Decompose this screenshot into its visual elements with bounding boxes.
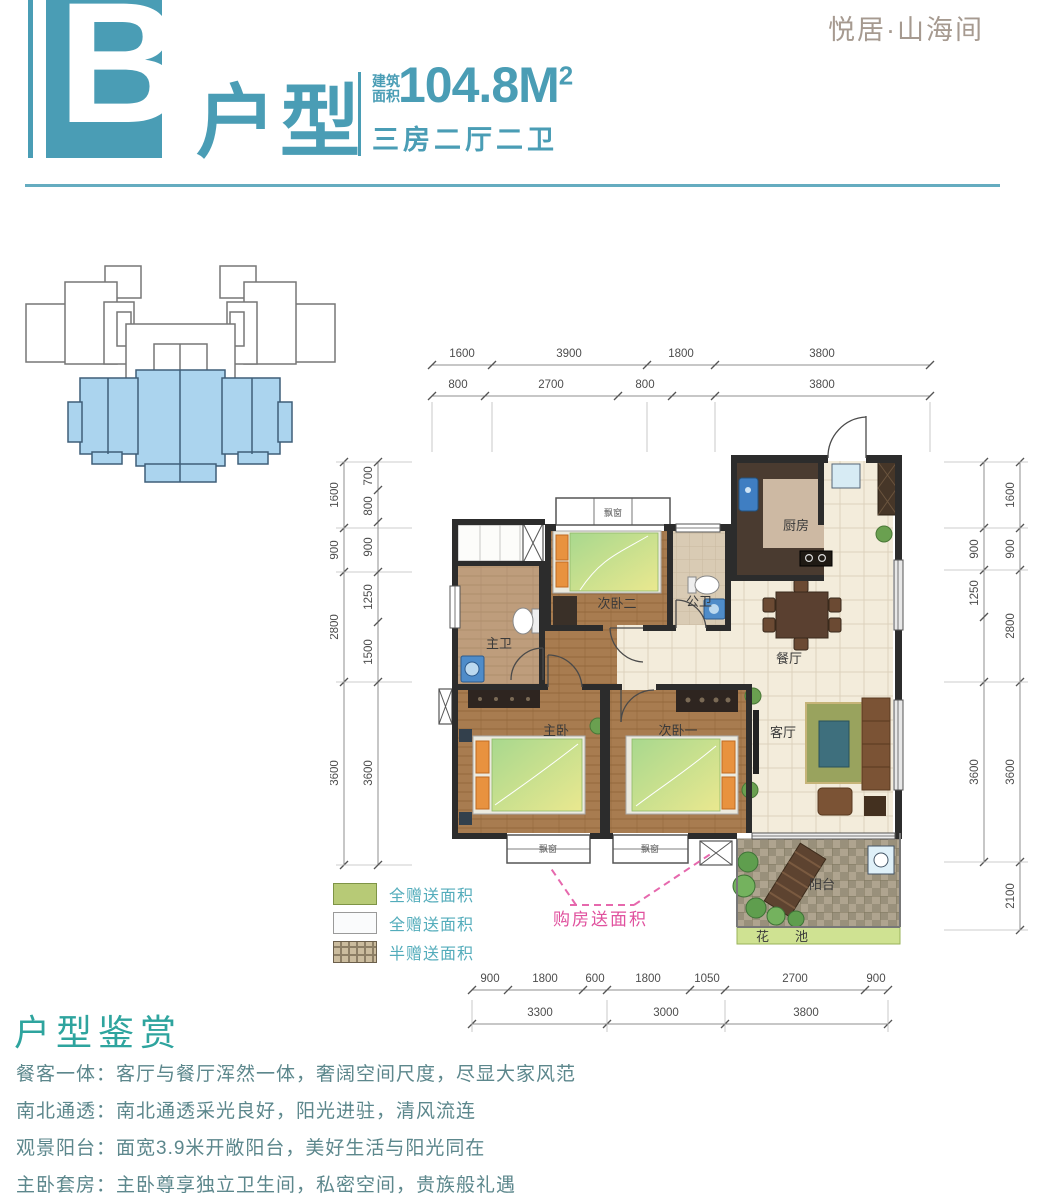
legend-label: 全赠送面积: [389, 911, 474, 935]
site-key-plan: [8, 252, 353, 487]
room-label-kitchen: 厨房: [783, 518, 809, 533]
plant-icon: [738, 852, 758, 872]
layout-description: 三房二厅二卫: [372, 118, 558, 157]
dim-label: 900: [1005, 539, 1017, 558]
stove-icon: [800, 551, 832, 566]
kitchen-sink-icon: [739, 478, 758, 511]
area-superscript: 2: [559, 60, 572, 90]
appreciation-item: 观景阳台：面宽3.9米开敞阳台，美好生活与阳光同在: [16, 1130, 576, 1167]
dim-label: 3600: [969, 759, 981, 785]
dim-label: 3900: [556, 348, 582, 360]
tv-console: [753, 710, 759, 774]
gift-area-callout: 购房送面积: [550, 853, 712, 929]
dim-label: 2700: [538, 379, 564, 391]
area-number: 104.8M: [398, 57, 559, 113]
toilet-icon: [513, 608, 533, 634]
room-label-guest-bath: 公卫: [686, 594, 712, 609]
legend-swatch-green: [333, 883, 377, 905]
dim-label: 3600: [330, 760, 341, 786]
dim-label: 800: [635, 379, 654, 391]
armchair: [818, 788, 852, 815]
legend-row-full-gift-green: 全赠送面积: [333, 882, 474, 906]
legend-label: 半赠送面积: [389, 940, 474, 964]
appreciation-item: 餐客一体：客厅与餐厅浑然一体，奢阔空间尺度，尽显大家风范: [16, 1056, 576, 1093]
dim-label: 1800: [532, 973, 558, 985]
header-divider: [358, 72, 361, 156]
shoe-cabinet: [878, 462, 897, 515]
dim-label: 3600: [363, 760, 375, 786]
dim-label: 900: [363, 537, 375, 556]
dim-label: 3600: [1005, 759, 1017, 785]
area-label: 建筑 面积: [372, 74, 400, 104]
dim-label: 700: [363, 466, 375, 485]
dim-label: 900: [866, 973, 885, 985]
toilet-icon: [695, 576, 719, 594]
bay-window-label: 飘窗: [604, 507, 622, 518]
plant-icon: [788, 911, 804, 927]
appreciation-title: 户型鉴赏: [14, 1004, 182, 1056]
legend-label: 全赠送面积: [389, 882, 474, 906]
dim-label: 2100: [1005, 883, 1017, 909]
legend-swatch-white: [333, 912, 377, 934]
area-label-line2: 面积: [372, 89, 400, 104]
appreciation-item: 主卧套房：主卧尊享独立卫生间，私密空间，贵族般礼遇: [16, 1167, 576, 1196]
dim-label: 3300: [527, 1007, 553, 1019]
dim-label: 3800: [809, 379, 835, 391]
plant-icon: [767, 907, 785, 925]
side-table: [864, 796, 886, 816]
plant-icon: [746, 898, 766, 918]
dim-label: 900: [969, 539, 981, 558]
plant-icon: [876, 526, 892, 542]
header-rule: [25, 184, 1000, 187]
dim-label: 2800: [1005, 613, 1017, 639]
room-label-dining: 餐厅: [776, 651, 802, 666]
dim-label: 900: [330, 540, 341, 559]
entry-cabinet: [832, 464, 860, 488]
bay-window-label: 飘窗: [539, 843, 557, 854]
appreciation-list: 餐客一体：客厅与餐厅浑然一体，奢阔空间尺度，尽显大家风范 南北通透：南北通透采光…: [16, 1056, 576, 1196]
dim-label: 1800: [668, 348, 694, 360]
room-label-balcony: 阳台: [809, 877, 835, 892]
dim-label: 1250: [969, 580, 981, 606]
legend-swatch-hatch: [333, 941, 377, 963]
brand-logotype: 悦居·山海间: [828, 8, 984, 47]
gift-area-callout-text: 购房送面积: [553, 910, 648, 929]
dim-label: 1050: [694, 973, 720, 985]
site-plan-highlighted-units: [68, 370, 292, 482]
dim-label: 3000: [653, 1007, 679, 1019]
dim-label: 600: [585, 973, 604, 985]
room-label-bedroom1: 次卧一: [658, 723, 697, 738]
unit-type-title: 户型: [196, 58, 364, 174]
legend: 全赠送面积 全赠送面积 半赠送面积: [333, 882, 474, 969]
dim-label: 1800: [635, 973, 661, 985]
room-label-master-bedroom: 主卧: [543, 723, 569, 738]
dim-label: 2700: [782, 973, 808, 985]
dim-label: 1600: [449, 348, 475, 360]
unit-letter: B: [58, 0, 182, 142]
dim-label: 2800: [330, 614, 341, 640]
flyer-page: B 户型 建筑 面积 104.8M2 三房二厅二卫 悦居·山海间: [0, 0, 1056, 1196]
room-label-living: 客厅: [770, 725, 796, 740]
bay-window-label: 飘窗: [641, 843, 659, 854]
dim-label: 1500: [363, 639, 375, 665]
legend-row-full-gift-white: 全赠送面积: [333, 911, 474, 935]
site-plan-building-outline: [26, 266, 335, 386]
dim-label: 3800: [809, 348, 835, 360]
dim-label: 800: [448, 379, 467, 391]
area-label-line1: 建筑: [372, 74, 400, 89]
dim-label: 3800: [793, 1007, 819, 1019]
coffee-table: [819, 721, 849, 767]
room-label-bedroom2: 次卧二: [597, 596, 636, 611]
legend-row-half-gift-hatch: 半赠送面积: [333, 940, 474, 964]
letter-block-stripe: [33, 0, 46, 158]
dim-label: 1600: [1005, 482, 1017, 508]
area-value: 104.8M2: [398, 56, 572, 114]
dim-label: 1250: [363, 584, 375, 610]
unit-letter-block: B: [28, 0, 162, 158]
room-label-flower-bed: 花池: [756, 929, 834, 944]
dim-label: 800: [363, 496, 375, 515]
dim-label: 900: [480, 973, 499, 985]
dim-label: 1600: [330, 482, 341, 508]
room-label-master-bath: 主卫: [486, 636, 512, 651]
appreciation-item: 南北通透：南北通透采光良好，阳光进驻，清风流连: [16, 1093, 576, 1130]
